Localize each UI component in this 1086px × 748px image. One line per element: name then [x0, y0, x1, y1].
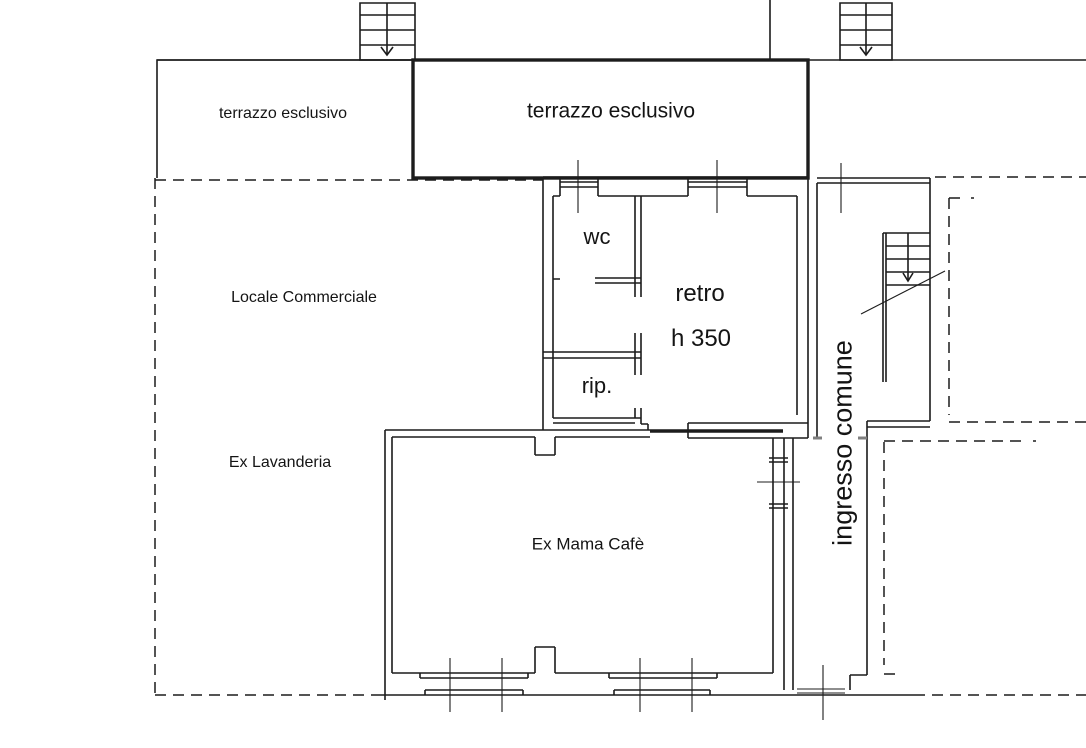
boundary-dashed-lines — [155, 177, 1086, 695]
window-left — [420, 673, 528, 695]
stairs-top-right-icon — [840, 3, 892, 60]
window-sill — [560, 182, 747, 187]
retro-label: retro — [675, 282, 724, 306]
stairs-corridor-icon — [861, 233, 945, 382]
wc-label: wc — [584, 226, 611, 248]
wc-bottom-wall — [553, 278, 641, 283]
terrace-main-label: terrazzo esclusivo — [527, 101, 695, 122]
entrance-threshold — [797, 689, 845, 693]
ex-lavanderia-label: Ex Lavanderia — [229, 455, 331, 471]
stairs-top-left-icon — [360, 3, 415, 60]
ex-mama-cafe-label: Ex Mama Cafè — [532, 536, 644, 553]
window-tick — [450, 658, 692, 712]
window-right — [609, 673, 717, 695]
side-window-frame — [769, 458, 788, 508]
rip-label: rip. — [582, 375, 613, 397]
pillar-notch-bottom — [535, 647, 555, 673]
terrace-left-label: terrazzo esclusivo — [219, 106, 347, 122]
site-outline — [157, 0, 1086, 178]
retro-height-label: h 350 — [671, 327, 731, 351]
rip-divider-wall — [543, 352, 641, 358]
stair-break-line — [861, 271, 945, 314]
locale-commerciale-label: Locale Commerciale — [231, 290, 377, 306]
wc-partition-wall — [635, 196, 641, 418]
pillar-notch-top — [535, 437, 555, 455]
ingresso-comune-label: ingresso comune — [830, 340, 857, 546]
floor-plan: terrazzo esclusivo terrazzo esclusivo Lo… — [0, 0, 1086, 748]
